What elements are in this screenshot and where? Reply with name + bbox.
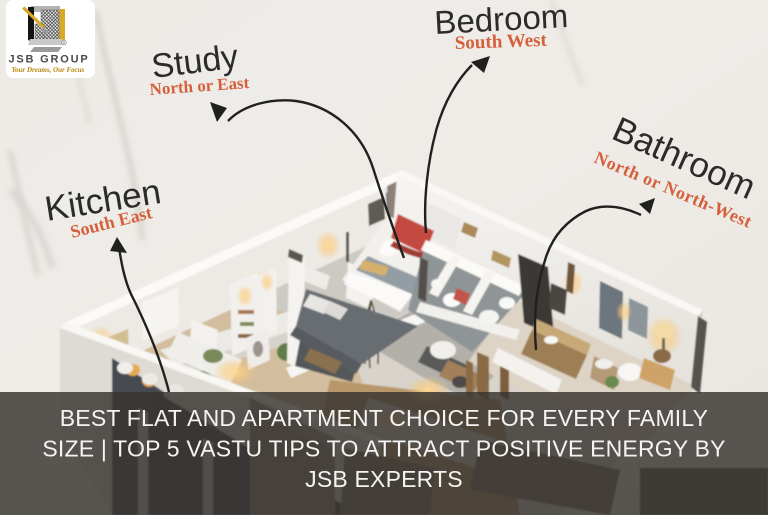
svg-text:Your Dreams, Our Focus: Your Dreams, Our Focus — [12, 66, 85, 74]
svg-text:JSB EXPERTS: JSB EXPERTS — [305, 466, 463, 492]
svg-text:BEST FLAT AND APARTMENT CHOICE: BEST FLAT AND APARTMENT CHOICE FOR EVERY… — [60, 405, 708, 431]
svg-text:JSB GROUP: JSB GROUP — [9, 54, 90, 66]
svg-text:South West: South West — [454, 30, 547, 54]
svg-text:SIZE | TOP 5 VASTU TIPS TO ATT: SIZE | TOP 5 VASTU TIPS TO ATTRACT POSIT… — [42, 436, 725, 462]
